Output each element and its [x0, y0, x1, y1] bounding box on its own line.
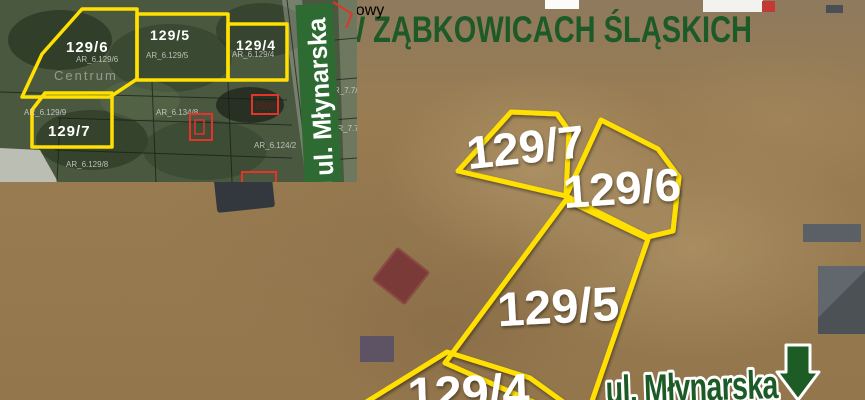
inset-label-129-6: 129/6 [66, 39, 109, 56]
street-name-overlay: ul. Młynarska [605, 363, 780, 400]
parcel-tag: AR_6.129/5 [146, 51, 189, 60]
real-estate-ad: 129/7 129/6 129/5 129/4 ul. Młynarska 4 … [0, 0, 865, 400]
plot-label-129-6: 129/6 [561, 158, 682, 218]
inset-label-129-5: 129/5 [150, 27, 190, 43]
down-arrow-icon [777, 345, 819, 400]
parcel-tag: AR_6.124/2 [254, 141, 297, 150]
inset-label-129-7: 129/7 [48, 123, 91, 140]
red-box-value: 2600 [255, 101, 275, 111]
cadastral-map: 129/6 129/5 129/4 129/7 AR_6.129/6 AR_6.… [0, 0, 357, 182]
parcel-tag: AR_6.134/8 [156, 108, 199, 117]
parcel-tag: AR_6.129/6 [76, 55, 119, 64]
parcel-tag: AR_6.129/4 [232, 50, 275, 59]
parcel-tag: AR_6.129/8 [66, 160, 109, 169]
plot-label-129-4: 129/4 [407, 365, 531, 400]
cadastral-map-inset: 129/6 129/5 129/4 129/7 AR_6.129/6 AR_6.… [0, 0, 357, 187]
plot-label-129-5: 129/5 [496, 278, 621, 337]
map-watermark: Centrum [54, 68, 118, 83]
parcel-tag: R_7.7/2 [334, 86, 357, 95]
parcel-tag: AR_6.129/9 [24, 108, 67, 117]
